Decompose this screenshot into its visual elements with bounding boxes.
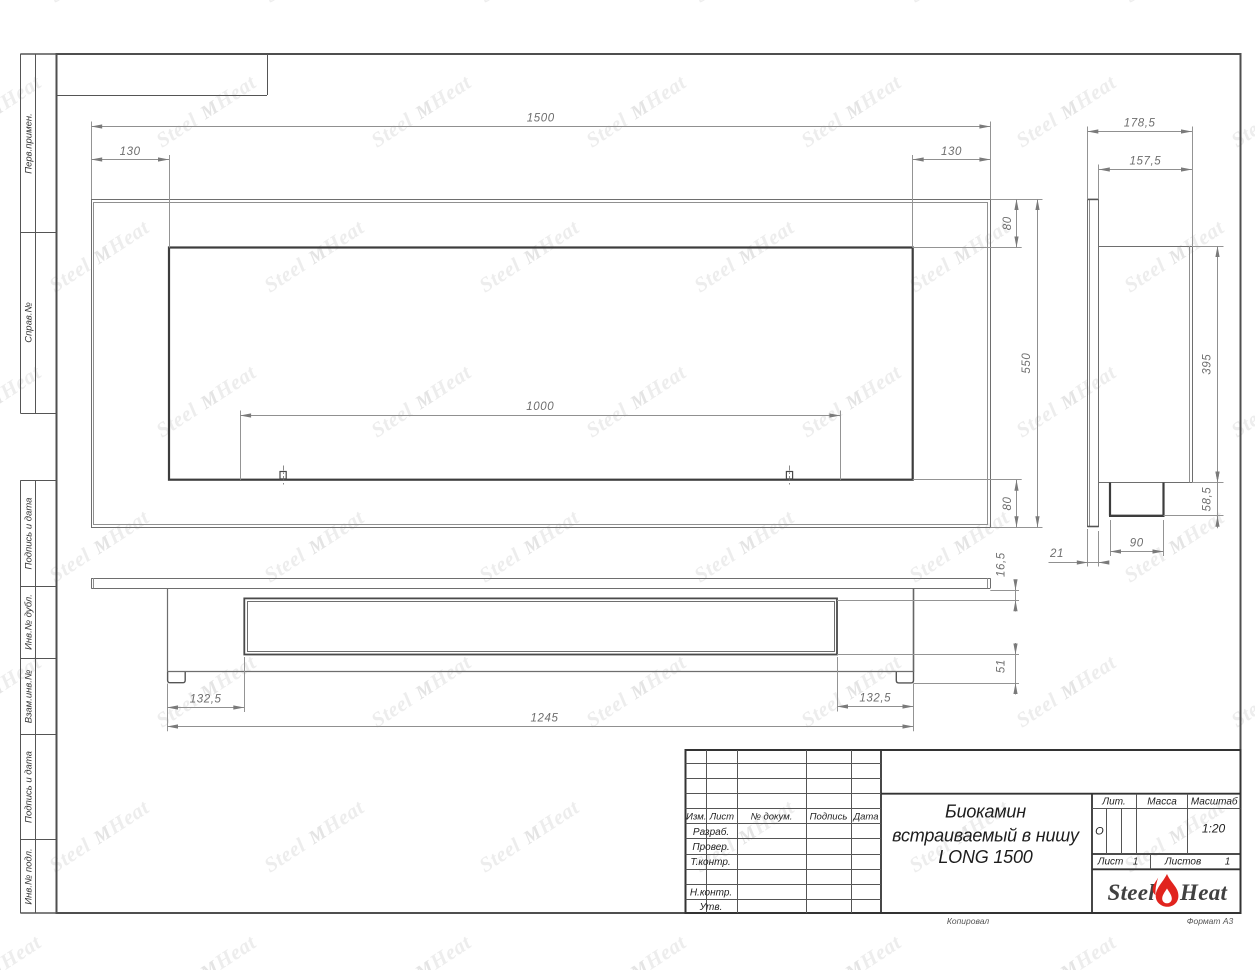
svg-text:встраиваемый в нишу: встраиваемый в нишу xyxy=(892,825,1080,845)
svg-text:Подпись: Подпись xyxy=(810,812,848,823)
svg-text:90: 90 xyxy=(1130,537,1144,549)
svg-text:Биокамин: Биокамин xyxy=(945,802,1026,822)
svg-text:1: 1 xyxy=(1133,857,1139,868)
svg-text:Разраб.: Разраб. xyxy=(693,826,729,838)
svg-text:Формат А3: Формат А3 xyxy=(1187,916,1234,926)
svg-text:1000: 1000 xyxy=(526,401,554,413)
svg-text:550: 550 xyxy=(1021,353,1033,374)
svg-text:Утв.: Утв. xyxy=(699,902,723,913)
svg-text:Листов: Листов xyxy=(1164,857,1201,868)
svg-text:О: О xyxy=(1095,826,1104,838)
svg-text:1245: 1245 xyxy=(531,712,559,724)
svg-text:80: 80 xyxy=(1002,497,1014,511)
svg-text:Инв.№ подл.: Инв.№ подл. xyxy=(24,848,35,904)
svg-text:№ докум.: № докум. xyxy=(751,812,793,823)
svg-text:Подпись и дата: Подпись и дата xyxy=(24,751,35,823)
svg-text:Т.контр.: Т.контр. xyxy=(690,857,730,868)
svg-text:LONG 1500: LONG 1500 xyxy=(938,847,1032,867)
svg-text:21: 21 xyxy=(1049,548,1064,560)
svg-text:Подпись и дата: Подпись и дата xyxy=(24,498,35,570)
svg-text:Лит.: Лит. xyxy=(1101,797,1125,808)
svg-text:Дата: Дата xyxy=(852,812,878,823)
svg-text:Масса: Масса xyxy=(1147,797,1177,808)
svg-text:Лист: Лист xyxy=(1097,857,1124,868)
svg-text:395: 395 xyxy=(1202,354,1214,375)
svg-text:80: 80 xyxy=(1002,216,1014,230)
svg-text:1: 1 xyxy=(1225,857,1231,868)
svg-text:Справ.№: Справ.№ xyxy=(24,302,35,343)
svg-text:Инв.№ дубл.: Инв.№ дубл. xyxy=(24,594,35,650)
svg-text:Провер.: Провер. xyxy=(692,842,729,853)
svg-text:130: 130 xyxy=(941,146,962,158)
svg-text:157,5: 157,5 xyxy=(1130,155,1162,167)
svg-text:58,5: 58,5 xyxy=(1202,487,1214,512)
svg-text:Перв.примен.: Перв.примен. xyxy=(24,113,35,174)
svg-text:Масштаб: Масштаб xyxy=(1191,796,1238,808)
svg-text:Steel: Steel xyxy=(1108,880,1156,905)
svg-text:Н.контр.: Н.контр. xyxy=(690,888,732,899)
svg-text:132,5: 132,5 xyxy=(859,693,891,705)
svg-text:16,5: 16,5 xyxy=(996,552,1008,577)
svg-text:130: 130 xyxy=(120,146,141,158)
svg-text:Heat: Heat xyxy=(1179,880,1227,905)
svg-text:1:20: 1:20 xyxy=(1202,822,1226,836)
svg-text:1500: 1500 xyxy=(527,112,555,124)
svg-text:51: 51 xyxy=(996,659,1008,673)
svg-text:132,5: 132,5 xyxy=(190,694,222,706)
svg-text:Копировал: Копировал xyxy=(947,916,989,926)
svg-text:Изм.: Изм. xyxy=(686,812,706,823)
svg-text:Взам.инв.№: Взам.инв.№ xyxy=(24,670,35,723)
svg-text:178,5: 178,5 xyxy=(1124,118,1156,130)
svg-text:Лист: Лист xyxy=(709,812,735,823)
